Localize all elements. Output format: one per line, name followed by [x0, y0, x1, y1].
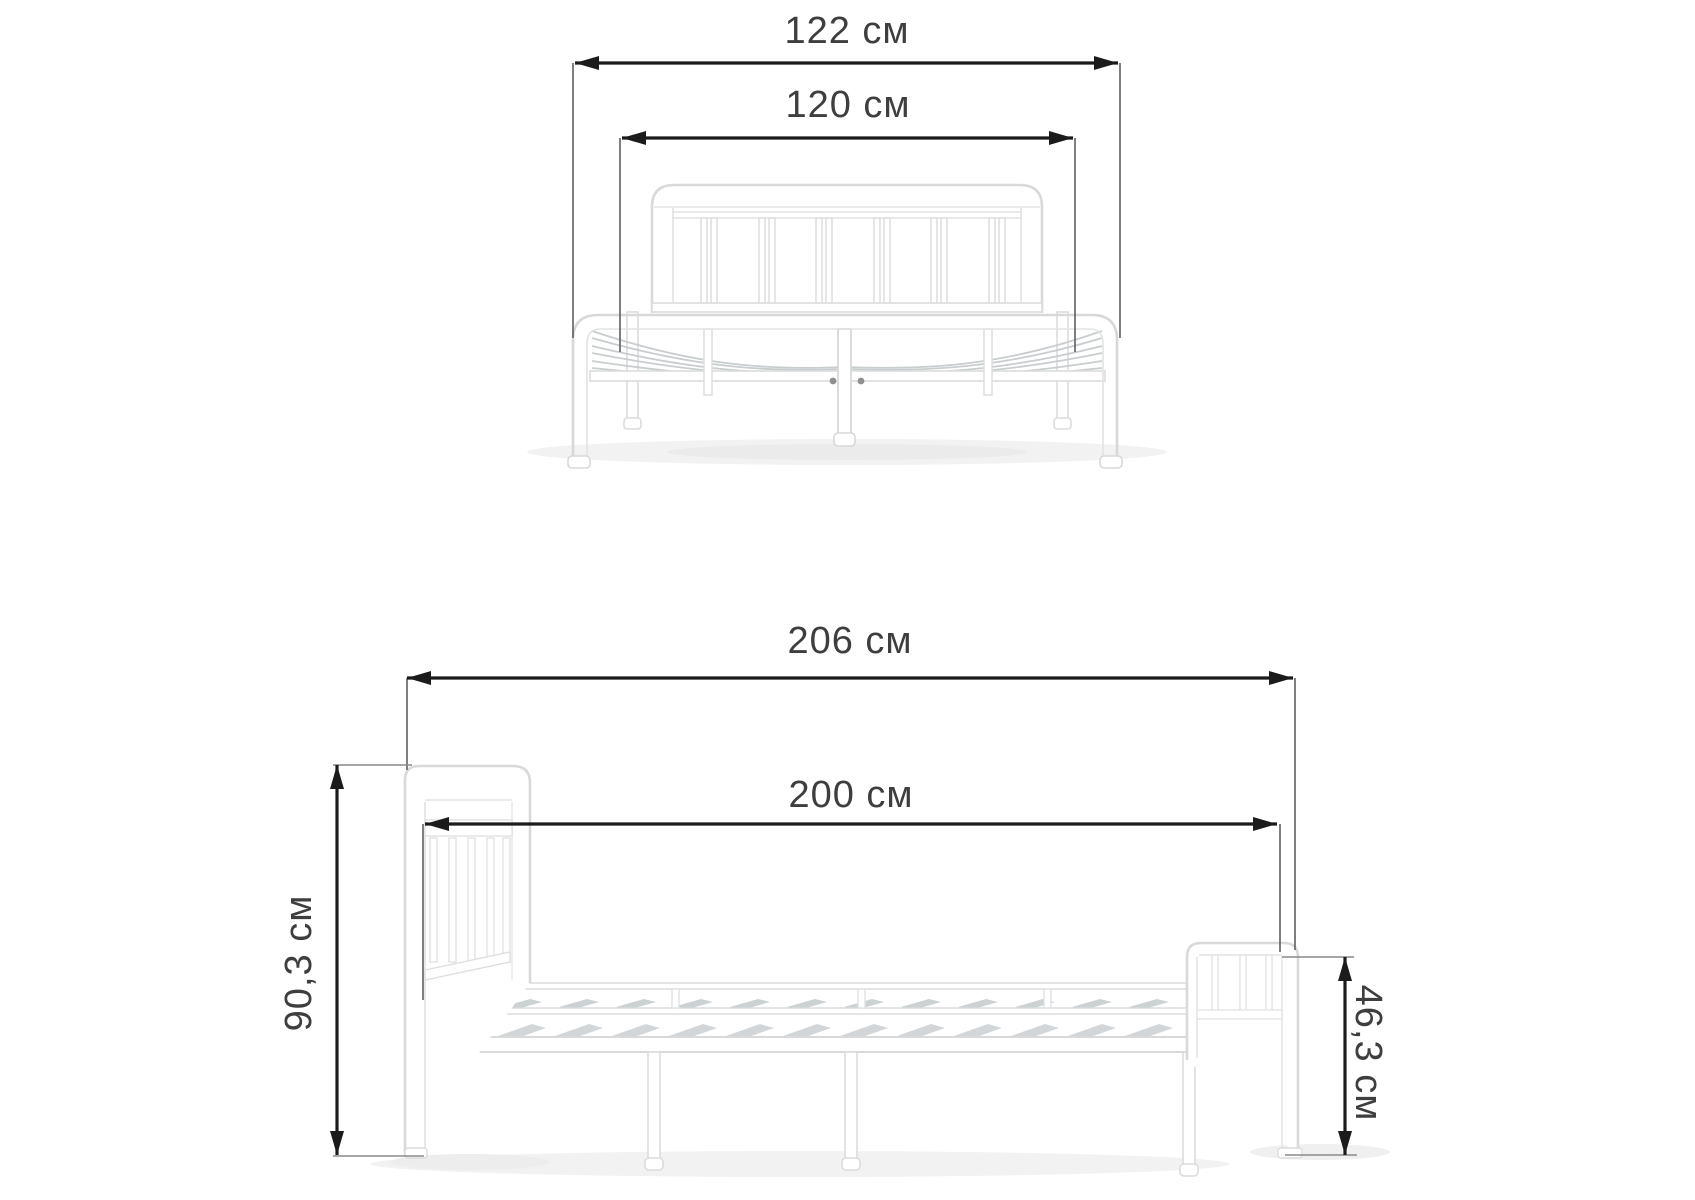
side-mid-rail	[430, 1008, 1187, 1014]
diagram-canvas	[0, 0, 1695, 1200]
side-footboard	[1187, 943, 1302, 1158]
side-top-rail	[425, 983, 1187, 989]
side-main-rail	[421, 1037, 1191, 1052]
front-center-leg	[830, 329, 865, 446]
front-overall-width-label: 122 см	[727, 10, 967, 52]
front-view-drawing	[527, 185, 1167, 468]
footboard-height-label: 46,3 см	[1347, 933, 1389, 1173]
side-overall-length-label: 206 см	[730, 620, 970, 662]
bed-dimensions-diagram: 122 см 120 см 206 см 200 см 90,3 см 46,3…	[0, 0, 1695, 1200]
headboard-height-label: 90,3 см	[278, 843, 320, 1083]
screw-icon	[858, 378, 865, 385]
front-inner-width-label: 120 см	[728, 84, 968, 126]
screw-icon	[830, 378, 837, 385]
side-inner-length-label: 200 см	[731, 774, 971, 816]
side-view-drawing	[370, 766, 1390, 1177]
front-headboard	[652, 185, 1042, 313]
side-rail-connectors	[672, 989, 1051, 1008]
